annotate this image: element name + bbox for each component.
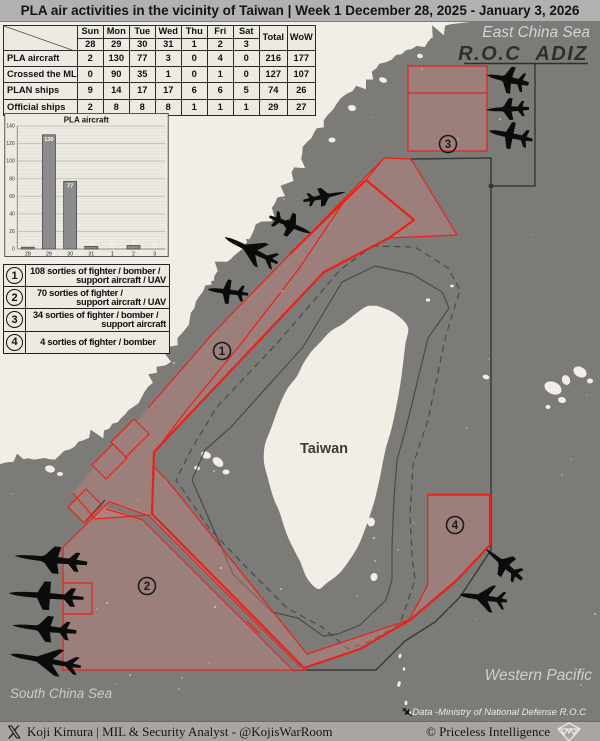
- svg-text:60: 60: [9, 194, 15, 200]
- svg-text:100: 100: [6, 159, 15, 165]
- svg-text:120: 120: [6, 141, 15, 147]
- svg-text:Western Pacific: Western Pacific: [485, 667, 593, 684]
- svg-text:29: 29: [46, 252, 52, 258]
- svg-text:28: 28: [25, 252, 31, 258]
- svg-text:1: 1: [111, 252, 114, 258]
- svg-text:20: 20: [9, 229, 15, 235]
- svg-text:1: 1: [219, 346, 226, 358]
- svg-text:4: 4: [452, 520, 459, 532]
- svg-text:2: 2: [26, 242, 29, 248]
- svg-text:80: 80: [9, 176, 15, 182]
- svg-text:40: 40: [9, 212, 15, 218]
- svg-text:Taiwan: Taiwan: [300, 441, 348, 457]
- svg-text:140: 140: [6, 124, 15, 130]
- svg-text:3: 3: [153, 252, 156, 258]
- svg-text:3: 3: [90, 241, 93, 247]
- svg-text:Data -Ministry of National Def: Data -Ministry of National Defense R.O.C: [412, 707, 586, 718]
- svg-text:77: 77: [67, 183, 73, 189]
- svg-text:0: 0: [111, 244, 114, 250]
- svg-text:2: 2: [144, 581, 150, 593]
- svg-text:3: 3: [445, 139, 451, 151]
- svg-text:4: 4: [132, 240, 135, 246]
- svg-text:130: 130: [44, 137, 53, 143]
- svg-text:0: 0: [12, 247, 15, 253]
- svg-text:0: 0: [153, 244, 156, 250]
- svg-text:2: 2: [132, 252, 135, 258]
- svg-text:31: 31: [88, 252, 94, 258]
- svg-text:R.O.C ADIZ: R.O.C ADIZ: [458, 43, 588, 65]
- svg-text:South China Sea: South China Sea: [10, 686, 113, 701]
- svg-text:East China Sea: East China Sea: [482, 24, 590, 41]
- svg-text:30: 30: [67, 252, 73, 258]
- svg-text:PLA aircraft: PLA aircraft: [64, 116, 109, 125]
